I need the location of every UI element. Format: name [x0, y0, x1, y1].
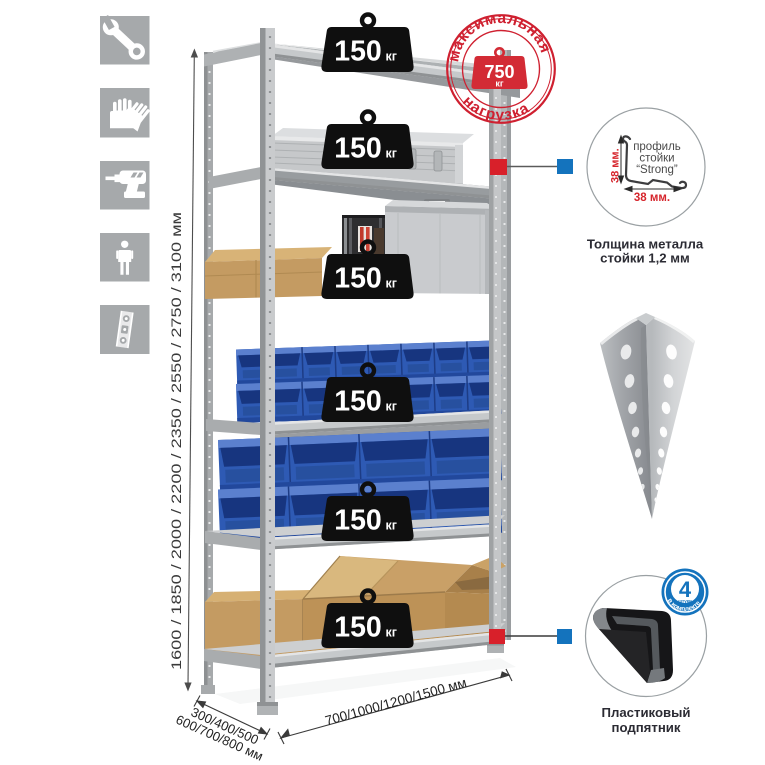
svg-text:150: 150 — [334, 612, 382, 644]
svg-text:Пластиковый: Пластиковый — [601, 705, 690, 720]
svg-text:150: 150 — [334, 133, 382, 165]
svg-text:150: 150 — [334, 36, 382, 68]
svg-text:38 мм.: 38 мм. — [610, 148, 622, 183]
svg-text:кг: кг — [386, 147, 397, 161]
svg-text:“Strong”: “Strong” — [636, 164, 678, 176]
svg-text:Толщина металла: Толщина металла — [587, 237, 704, 252]
svg-text:штуки: штуки — [678, 599, 692, 604]
svg-text:стойки 1,2 мм: стойки 1,2 мм — [600, 251, 690, 266]
svg-text:кг: кг — [495, 79, 504, 89]
svg-text:150: 150 — [334, 505, 382, 537]
svg-text:подпятник: подпятник — [611, 720, 680, 735]
svg-text:кг: кг — [386, 400, 397, 414]
svg-text:кг: кг — [386, 626, 397, 640]
svg-text:стойки: стойки — [639, 153, 674, 165]
svg-text:кг: кг — [386, 277, 397, 291]
svg-text:38 мм.: 38 мм. — [634, 192, 670, 204]
svg-text:профиль: профиль — [633, 141, 681, 153]
svg-text:150: 150 — [334, 386, 382, 418]
svg-text:1600 / 1850 / 2000 / 2200 / 23: 1600 / 1850 / 2000 / 2200 / 2350 / 2550 … — [169, 212, 184, 670]
svg-text:кг: кг — [386, 519, 397, 533]
svg-text:150: 150 — [334, 263, 382, 295]
svg-text:кг: кг — [386, 50, 397, 64]
